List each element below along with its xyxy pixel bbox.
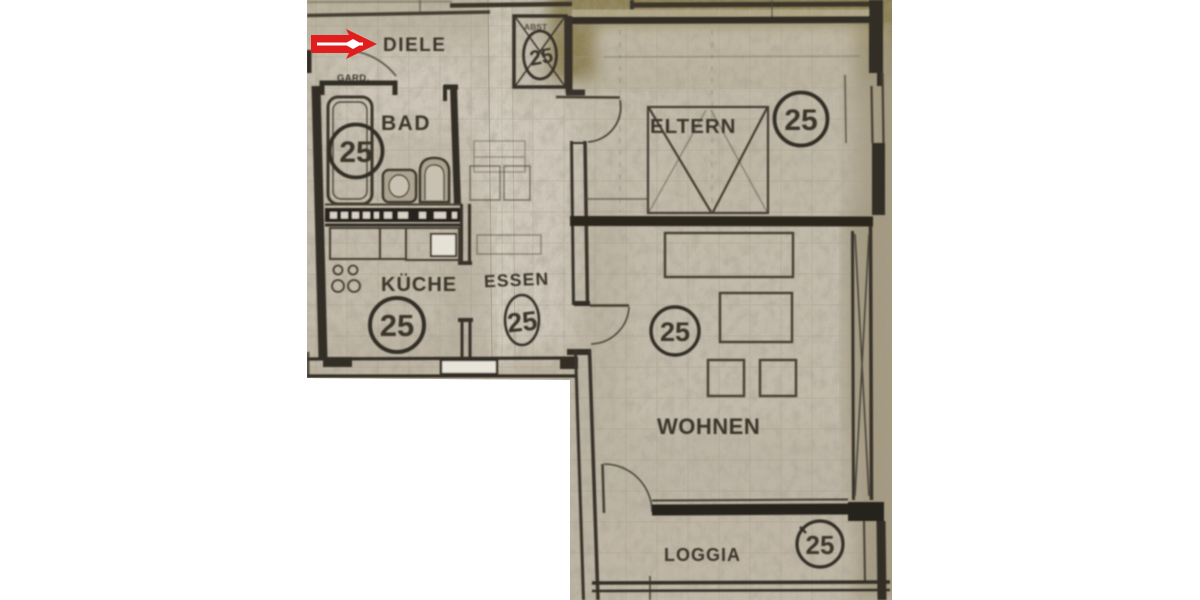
svg-text:25: 25 <box>806 530 835 560</box>
svg-text:BAD: BAD <box>381 112 431 135</box>
svg-text:WOHNEN: WOHNEN <box>657 414 760 439</box>
svg-text:GARD.: GARD. <box>337 73 370 84</box>
svg-text:25: 25 <box>660 317 690 347</box>
svg-text:ESSEN: ESSEN <box>484 269 550 292</box>
svg-text:ELTERN: ELTERN <box>650 115 736 138</box>
svg-text:25: 25 <box>380 308 414 343</box>
svg-text:DIELE: DIELE <box>383 35 446 56</box>
svg-text:25: 25 <box>528 44 555 71</box>
svg-text:25: 25 <box>506 306 539 339</box>
svg-text:KÜCHE: KÜCHE <box>381 273 457 296</box>
svg-text:25: 25 <box>339 136 372 169</box>
svg-text:ABST: ABST <box>524 22 548 32</box>
svg-text:LOGGIA: LOGGIA <box>664 545 741 565</box>
svg-text:25: 25 <box>784 104 817 137</box>
